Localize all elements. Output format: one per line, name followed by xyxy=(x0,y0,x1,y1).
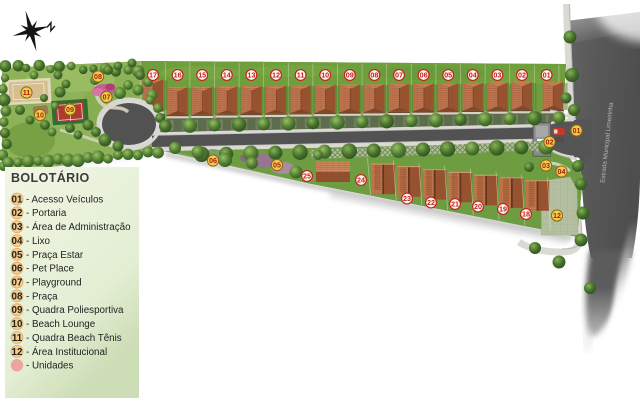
svg-text:11: 11 xyxy=(12,333,23,344)
svg-text:02: 02 xyxy=(546,138,554,147)
svg-text:24: 24 xyxy=(357,176,365,185)
svg-text:03: 03 xyxy=(12,222,23,233)
svg-text:04: 04 xyxy=(558,167,566,176)
svg-text:20: 20 xyxy=(474,202,482,211)
svg-text:- Acesso Veículos: - Acesso Veículos xyxy=(26,194,103,205)
svg-text:- Beach Lounge: - Beach Lounge xyxy=(26,319,96,330)
svg-text:07: 07 xyxy=(103,93,111,102)
svg-text:13: 13 xyxy=(247,71,255,80)
svg-text:22: 22 xyxy=(427,198,435,207)
svg-text:14: 14 xyxy=(223,71,231,80)
svg-text:17: 17 xyxy=(149,71,157,80)
svg-text:07: 07 xyxy=(12,278,23,289)
svg-text:16: 16 xyxy=(174,71,182,80)
svg-text:- Praça Estar: - Praça Estar xyxy=(26,250,84,261)
svg-text:08: 08 xyxy=(12,291,23,302)
svg-text:12: 12 xyxy=(553,211,561,220)
svg-text:12: 12 xyxy=(272,71,280,80)
svg-text:10: 10 xyxy=(321,71,329,80)
svg-text:02: 02 xyxy=(518,71,526,80)
svg-text:08: 08 xyxy=(370,71,378,80)
svg-text:- Quadra Beach Tênis: - Quadra Beach Tênis xyxy=(26,333,122,344)
svg-text:01: 01 xyxy=(573,126,581,135)
svg-text:01: 01 xyxy=(12,194,23,205)
svg-text:05: 05 xyxy=(12,250,23,261)
svg-text:03: 03 xyxy=(493,71,501,80)
svg-text:- Unidades: - Unidades xyxy=(26,361,73,372)
svg-text:23: 23 xyxy=(403,194,411,203)
svg-text:- Praça: - Praça xyxy=(26,291,58,302)
svg-text:- Quadra Poliesportiva: - Quadra Poliesportiva xyxy=(26,305,124,316)
svg-text:12: 12 xyxy=(12,347,23,358)
svg-text:04: 04 xyxy=(469,71,477,80)
svg-text:- Lixo: - Lixo xyxy=(26,236,51,247)
svg-text:15: 15 xyxy=(198,71,206,80)
svg-text:02: 02 xyxy=(12,208,23,219)
svg-text:21: 21 xyxy=(451,200,459,209)
svg-text:10: 10 xyxy=(36,111,44,120)
svg-text:- Área de Administração: - Área de Administração xyxy=(26,222,131,233)
svg-text:18: 18 xyxy=(522,210,530,219)
svg-text:25: 25 xyxy=(303,172,311,181)
svg-text:03: 03 xyxy=(542,161,550,170)
svg-text:09: 09 xyxy=(66,105,74,114)
svg-text:- Área Institucional: - Área Institucional xyxy=(26,347,107,358)
svg-text:09: 09 xyxy=(346,71,354,80)
svg-text:BOLOTÁRIO: BOLOTÁRIO xyxy=(11,170,90,185)
svg-text:19: 19 xyxy=(499,205,507,214)
svg-text:- Playground: - Playground xyxy=(26,278,82,289)
svg-text:10: 10 xyxy=(12,319,23,330)
svg-text:06: 06 xyxy=(420,71,428,80)
svg-text:04: 04 xyxy=(12,236,23,247)
svg-text:11: 11 xyxy=(23,88,31,97)
svg-text:07: 07 xyxy=(395,71,403,80)
svg-text:09: 09 xyxy=(12,305,23,316)
svg-text:01: 01 xyxy=(543,71,551,80)
svg-text:11: 11 xyxy=(297,71,305,80)
svg-text:- Portaria: - Portaria xyxy=(26,208,67,219)
svg-text:06: 06 xyxy=(12,264,23,275)
svg-text:- Pet Place: - Pet Place xyxy=(26,264,74,275)
svg-text:05: 05 xyxy=(444,71,452,80)
svg-text:08: 08 xyxy=(94,72,102,81)
svg-text:05: 05 xyxy=(273,161,281,170)
svg-text:06: 06 xyxy=(209,156,217,165)
